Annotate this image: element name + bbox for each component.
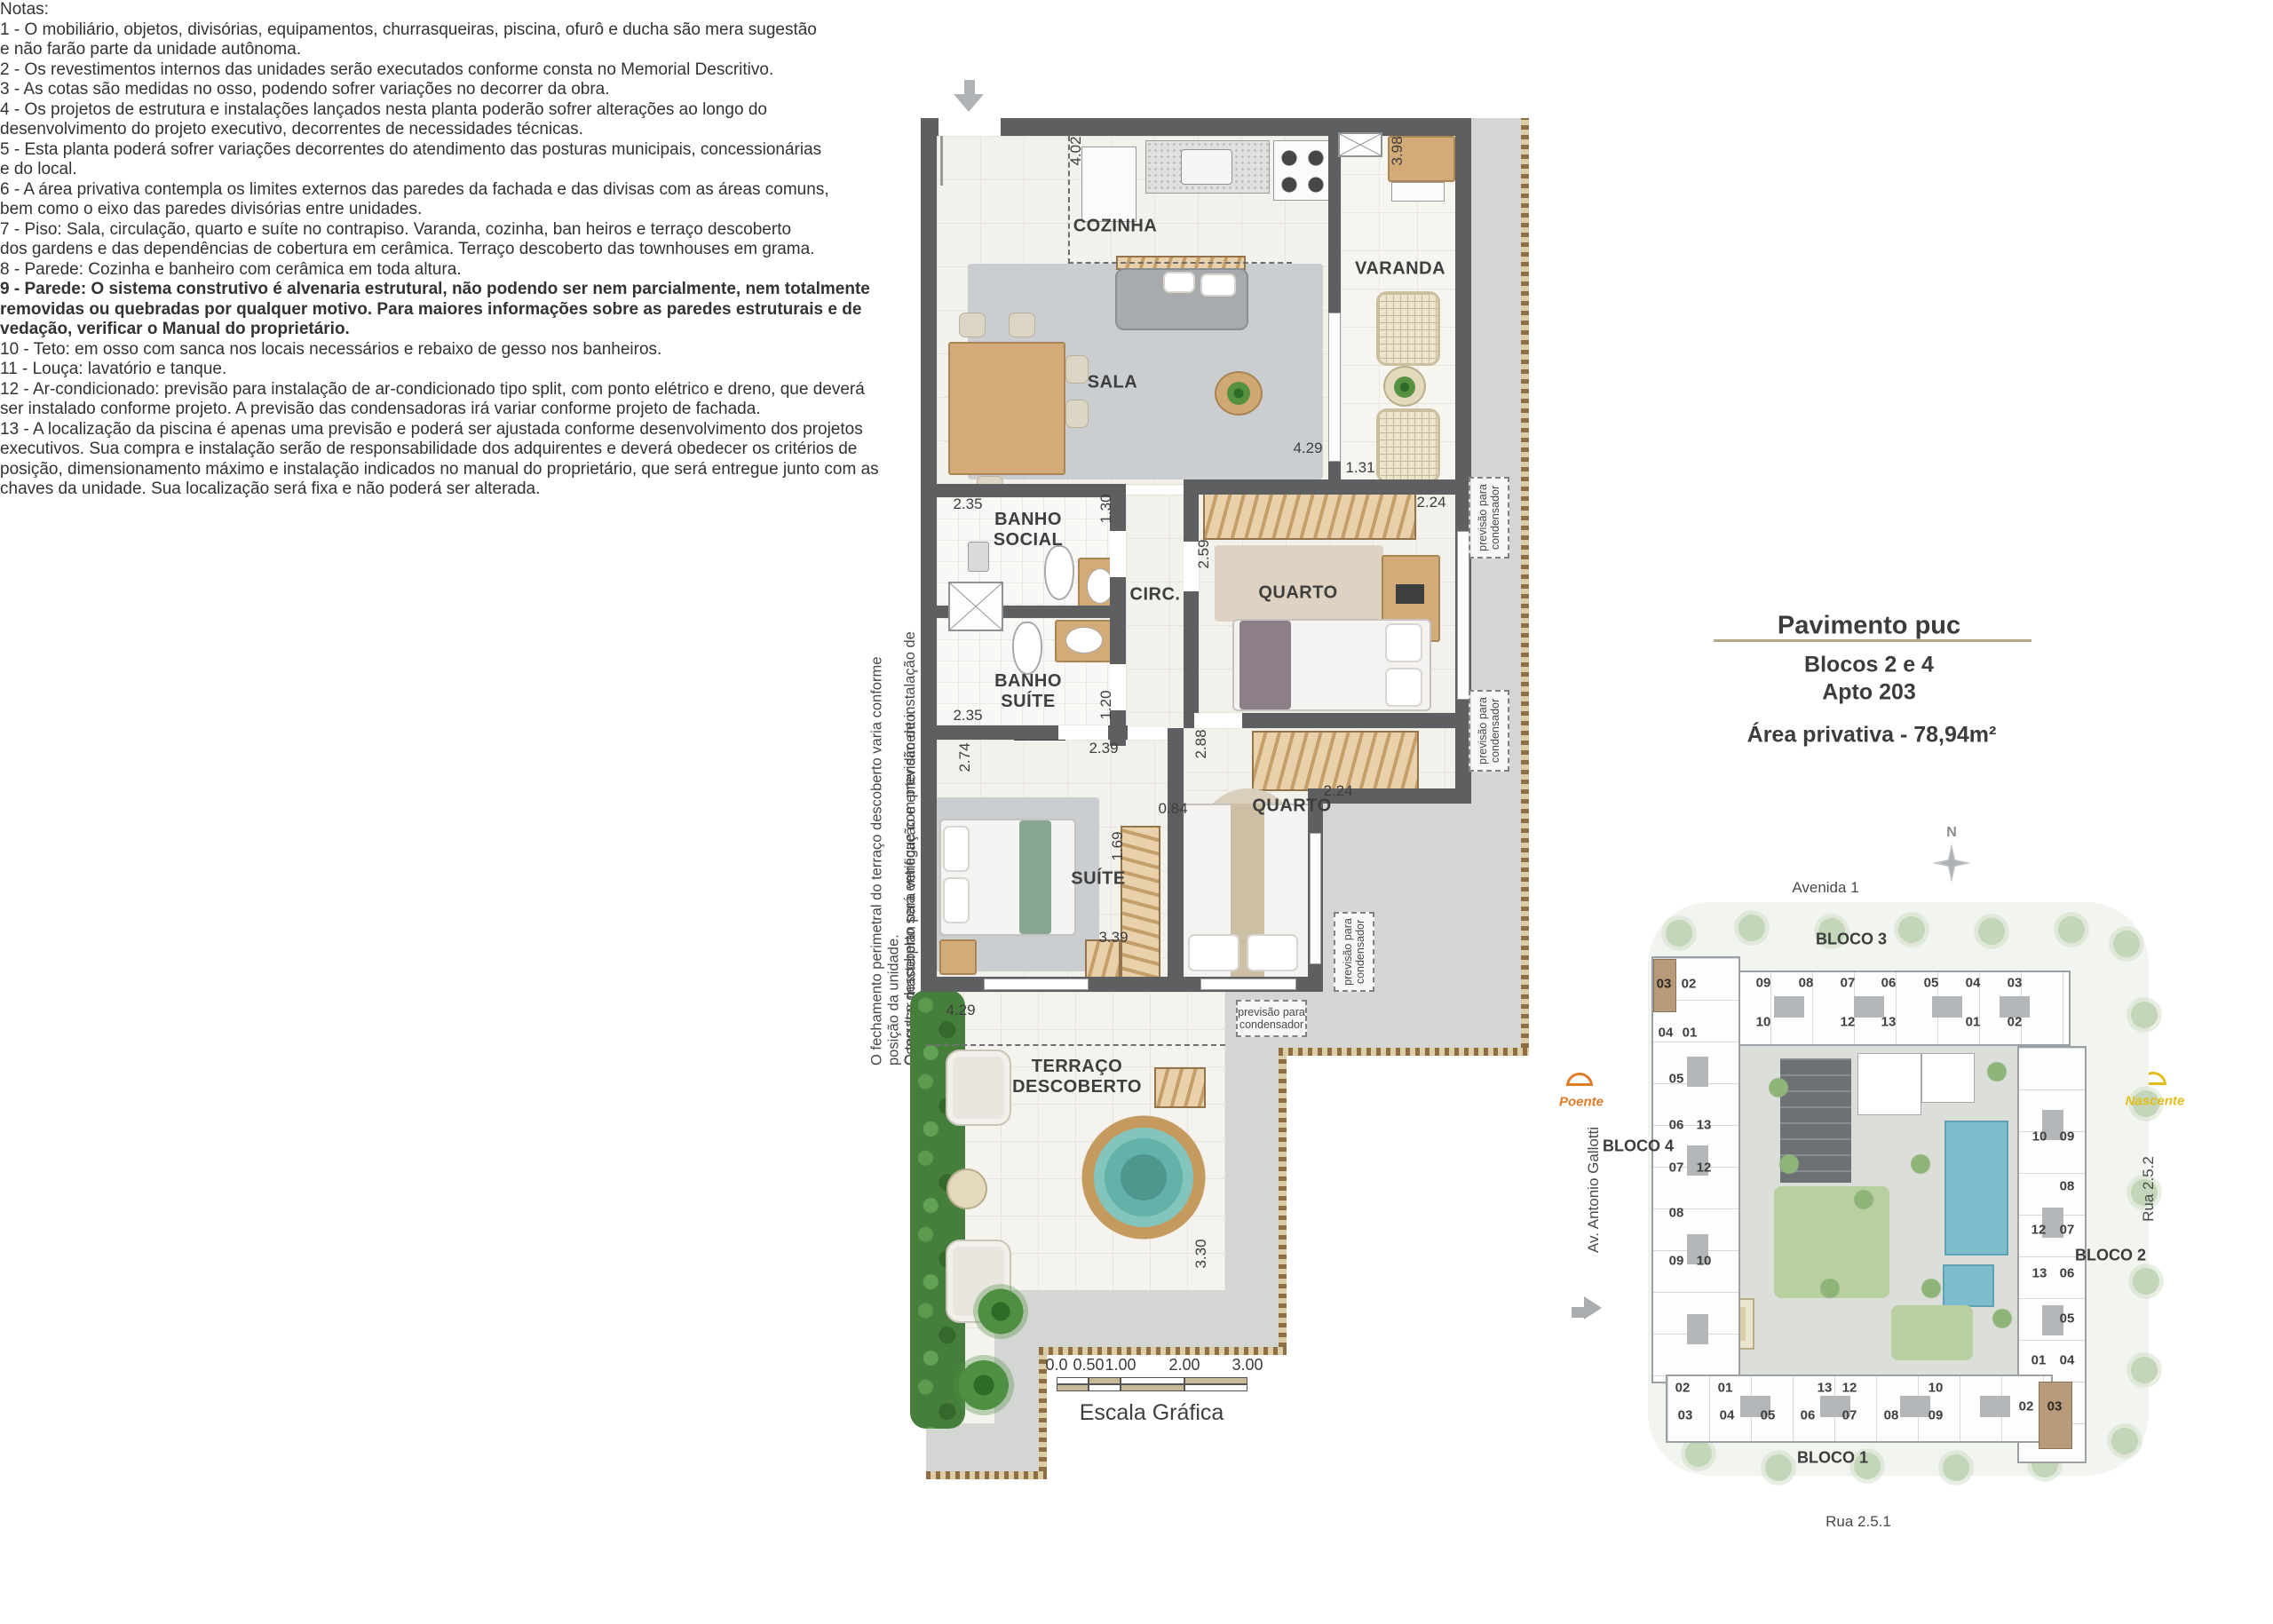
tree [1989,1305,2016,1332]
unit-number: 03 [1657,977,1672,992]
note-item: 10 - Teto: em osso com sanca nos locais … [0,340,888,360]
window [1200,978,1296,990]
balcony-armchair [1376,291,1440,366]
block-label: BLOCO 1 [1797,1449,1868,1468]
unit-number: 02 [2019,1399,2034,1414]
unit-number: 04 [1720,1408,1735,1423]
plant [973,1284,1028,1339]
core [1687,1314,1708,1344]
sofa-pillow [1200,273,1236,297]
tree [1907,1151,1934,1177]
unit-number: 09 [1669,1254,1684,1269]
entry-arrow-head [954,94,984,112]
unit-number: 10 [2032,1129,2047,1145]
dimension-label: 2.59 [1195,539,1213,568]
unit-number: 10 [1697,1254,1712,1269]
room-label: QUARTO [1258,583,1337,604]
note-item: 9 - Parede: O sistema construtivo é alve… [0,280,888,340]
unit-number: 13 [1697,1118,1712,1133]
unit-number: 06 [1801,1408,1816,1423]
room-label: BANHO SUÍTE [994,671,1062,712]
dimension-label: 3.98 [1389,136,1406,165]
core [1854,996,1884,1018]
street-label: Av. Antonio Gallotti [1585,1127,1603,1253]
kids-pool [1943,1264,1994,1307]
wall [1184,479,1471,495]
room-label: TERRAÇO DESCOBERTO [1012,1057,1142,1097]
unit-number: 05 [2060,1311,2075,1327]
nightstand [939,939,977,975]
note-item: 3 - As cotas são medidas no osso, podend… [0,80,888,100]
toilet [1012,622,1042,675]
dimension-label: 4.02 [1067,136,1085,165]
dimension-label: 0.84 [1158,800,1187,818]
dimension-label: 4.29 [1293,440,1322,457]
door-leaf [940,136,943,186]
tree [2106,923,2147,964]
unit-number: 12 [1841,1015,1856,1030]
street-label: Avenida 1 [1792,879,1858,897]
core [1900,1396,1930,1417]
window [1310,833,1321,964]
tree [1971,911,2012,952]
fence [1279,1048,1529,1056]
unit-number: 01 [2031,1353,2047,1368]
street-label: Rua 2.5.2 [2140,1156,2158,1222]
unit-number: 09 [2060,1129,2075,1145]
unit-number: 04 [1966,976,1981,991]
walkway [926,1423,1039,1471]
dimension-label: 1.30 [1097,494,1115,523]
wall [1168,728,1184,977]
private-area-label: Área privativa - 78,94m² [1747,723,1997,749]
note-item: 4 - Os projetos de estrutura e instalaçõ… [0,100,888,140]
unit-number: 06 [1669,1118,1684,1133]
notes-heading: Notas: [0,0,888,20]
walkway [1225,1048,1279,1347]
deck-steps [1154,1067,1206,1108]
dimension-label: 1.31 [1345,459,1374,477]
sun-label: Poente [1559,1095,1604,1110]
scale-segment [1057,1377,1089,1384]
pillow [1385,668,1422,707]
room-label: CIRC. [1130,585,1181,606]
condenser-label: previsão para condensador [1477,697,1501,764]
tree [1850,1186,1877,1213]
scale-tick-label: 2.00 [1168,1356,1200,1374]
unit-number: 02 [2008,1015,2023,1030]
scale-segment [1089,1384,1121,1391]
note-item: 5 - Esta planta poderá sofrer variações … [0,140,888,180]
hot-tub [1081,1115,1206,1240]
unit-number: 07 [1842,1408,1857,1423]
pillow [943,877,970,923]
unit-number: 07 [2060,1223,2075,1238]
sunset-icon [1566,1073,1593,1086]
plant [1394,376,1415,398]
note-item: 8 - Parede: Cozinha e banheiro com cerâm… [0,260,888,281]
dimension-label: 2.39 [1089,740,1118,757]
room-label: SUÍTE [1071,869,1125,890]
window [1457,531,1469,700]
scale-segment [1057,1384,1089,1391]
dining-chair [1009,313,1035,337]
unit-number: 04 [2060,1353,2075,1368]
unit-number: 08 [2060,1179,2075,1194]
dimension-label: 2.35 [953,707,982,725]
sofa-pillow [1163,272,1195,293]
clubhouse [1857,1053,1921,1115]
unit-number: 08 [1799,976,1814,991]
unit-number: 05 [1924,976,1939,991]
room-label: COZINHA [1073,217,1158,237]
apartment-label: Apto 203 [1822,680,1916,706]
street-label: Rua 2.5.1 [1826,1513,1891,1531]
dimension-label: 2.24 [1323,782,1352,800]
tree [2104,1421,2145,1462]
unit-number: 07 [1669,1161,1684,1176]
window [984,978,1089,990]
unit-number: 10 [1756,1015,1771,1030]
unit-number: 02 [1675,1381,1691,1396]
plant [1227,382,1250,405]
unit-number: 08 [1669,1206,1684,1221]
dimension-label: 1.20 [1097,690,1115,719]
wall [921,136,937,992]
blocks-label: Blocos 2 e 4 [1804,653,1934,678]
tree [2124,994,2165,1035]
tree [1776,1151,1802,1177]
tree [1817,1275,1843,1302]
scale-segment [1184,1384,1247,1391]
block-label: BLOCO 4 [1603,1137,1674,1156]
sun-label: Nascente [2126,1094,2185,1109]
room-label: SALA [1088,373,1137,393]
scale-tick-label: 3.00 [1232,1356,1263,1374]
dimension-label: 2.24 [1416,494,1445,511]
shaft [1338,132,1382,157]
unit-number: 01 [1683,1026,1698,1041]
tree [1731,907,1772,948]
laptop [1396,584,1424,604]
pool [1944,1121,2008,1256]
condenser-box: previsão para condensador [1469,477,1509,558]
site-arrow-head [1584,1296,1602,1319]
scale-segment [1089,1377,1121,1384]
scale-segment [1121,1384,1184,1391]
circulation-floor [1126,495,1184,727]
pillow [943,826,970,872]
note-item: 2 - Os revestimentos internos das unidad… [0,60,888,81]
washer [1391,182,1445,202]
fence [1279,1056,1287,1347]
fence [926,1471,1047,1479]
kitchen-boundary-dashed [1068,262,1292,264]
note-item: 13 - A localização da piscina é apenas u… [0,420,888,500]
balcony-door [1328,313,1341,462]
door-opening [1058,725,1108,740]
dining-table [948,342,1065,475]
bed-throw [1019,820,1051,934]
room-label: VARANDA [1355,259,1445,280]
fence [1521,118,1529,1048]
balcony-armchair [1376,408,1440,483]
unit-number: 03 [1678,1408,1693,1423]
unit-number: 05 [1761,1408,1776,1423]
core [1932,996,1962,1018]
shaft [948,582,1003,631]
unit-number: 06 [2060,1266,2075,1281]
room-label: BANHO SOCIAL [994,510,1064,551]
note-item: 11 - Louça: lavatório e tanque. [0,360,888,380]
title-underline [1714,639,2031,642]
toilet [1044,545,1074,600]
unit-number: 02 [1682,977,1697,992]
dimension-label: 2.88 [1192,729,1210,758]
plant [954,1355,1014,1415]
wardrobe [1203,491,1416,540]
tree [2124,1350,2165,1390]
scale-tick-label: 1.00 [1105,1356,1136,1374]
dining-chair [1065,355,1089,384]
condenser-box: previsão para condensador [1469,690,1509,772]
unit-number: 10 [1928,1381,1944,1396]
pillow [1247,934,1298,971]
door-opening [1110,531,1126,577]
scale-tick-label: 0.50 [1073,1356,1104,1374]
wall [921,118,1471,136]
tree [1936,1447,1976,1488]
note-item: 1 - O mobiliário, objetos, divisórias, e… [0,20,888,60]
unit-number: 09 [1928,1408,1944,1423]
note-item: 6 - A área privativa contempla os limite… [0,180,888,220]
tree [2051,909,2092,950]
dimension-label: 3.30 [1192,1239,1210,1268]
unit-number: 06 [1881,976,1897,991]
tree [2126,1261,2166,1302]
lounge-chair [946,1050,1011,1126]
kitchen-sink [1181,149,1232,185]
unit-number: 01 [1966,1015,1981,1030]
room-label: QUARTO [1252,796,1331,817]
dimension-label: 3.39 [1098,929,1128,947]
dining-chair [1065,400,1089,428]
basin [1065,627,1103,654]
door-opening [1194,713,1242,728]
note-item: 12 - Ar-condicionado: previsão para inst… [0,380,888,420]
entry-arrow [964,80,975,94]
block-label: BLOCO 2 [2075,1247,2146,1265]
core [1687,1057,1708,1087]
page-title: Pavimento puc [1778,612,1960,641]
common-corridor [1471,118,1521,1048]
unit-number: 03 [2008,976,2023,991]
condenser-box: previsão para condensador [1236,1000,1307,1037]
unit-number: 12 [1697,1161,1712,1176]
pillow [1385,623,1422,662]
fridge [1081,147,1136,222]
highlighted-unit [2039,1382,2072,1449]
core [1980,1396,2010,1417]
dimension-label: 1.69 [1109,831,1127,860]
unit-number: 13 [1881,1015,1897,1030]
side-table [946,1168,987,1209]
tree [1918,1275,1944,1302]
condenser-label: previsão para condensador [1342,918,1366,986]
stove [1273,140,1330,201]
core [1774,996,1804,1018]
unit-number: 04 [1659,1026,1674,1041]
pillow [1188,934,1239,971]
walkway [994,1290,1225,1347]
tree [1758,1447,1799,1488]
unit-number: 13 [2032,1266,2047,1281]
unit-number: 07 [1841,976,1856,991]
dimension-label: 4.29 [946,1002,975,1019]
condenser-label: previsão para condensador [1238,1006,1305,1031]
tree [1891,909,1932,950]
terrace-boundary-dashed [926,1044,1225,1046]
block-label: BLOCO 3 [1816,931,1887,949]
scale-tick-label: 0.0 [1045,1356,1067,1374]
floor-plan-sheet: Pavimento puc Blocos 2 e 4 Apto 203 Área… [0,0,2273,1624]
dimension-label: 2.74 [956,742,974,772]
shower-head [968,542,989,572]
site-arrow [1572,1307,1584,1318]
entry-door-opening [939,118,1001,136]
wall [1184,495,1199,725]
scale-segment [1184,1377,1247,1384]
dimension-label: 2.35 [953,495,982,513]
fence [1039,1347,1287,1355]
unit-number: 13 [1818,1381,1833,1396]
notes-block: Notas:1 - O mobiliário, objetos, divisór… [0,0,888,500]
scale-caption: Escala Gráfica [1080,1400,1224,1426]
condenser-label: previsão para condensador [1477,484,1501,551]
dining-chair [959,313,986,337]
unit-number: 08 [1884,1408,1899,1423]
condenser-box: previsão para condensador [1334,912,1374,992]
service-building [1921,1053,1975,1103]
unit-number: 12 [1842,1381,1857,1396]
compass-north-label: N [1946,825,1957,841]
unit-number: 01 [1718,1381,1733,1396]
tree [1659,913,1699,954]
bed-throw [1239,621,1291,709]
tree [1984,1058,2010,1085]
unit-number: 05 [1669,1072,1684,1087]
lawn [1891,1305,1973,1360]
unit-number: 03 [2047,1399,2063,1414]
note-item: 7 - Piso: Sala, circulação, quarto e suí… [0,220,888,260]
unit-number: 12 [2031,1223,2047,1238]
compass-icon [1932,842,1971,884]
unit-number: 09 [1756,976,1771,991]
tree [1765,1074,1792,1101]
scale-segment [1121,1377,1184,1384]
